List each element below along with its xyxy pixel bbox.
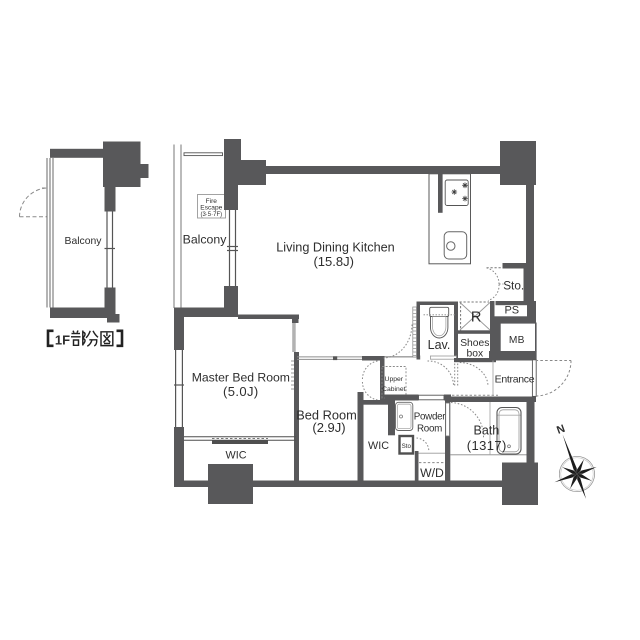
svg-text:1F: 1F (55, 333, 70, 348)
svg-text:W/D: W/D (420, 466, 444, 480)
svg-text:Cabinet: Cabinet (382, 386, 406, 393)
svg-text:PS: PS (504, 305, 519, 317)
svg-text:Sto.: Sto. (503, 279, 524, 293)
svg-text:Balcony: Balcony (65, 236, 103, 247)
svg-text:Escape: Escape (200, 205, 222, 212)
svg-text:Upper: Upper (385, 376, 404, 383)
svg-text:Shoes: Shoes (460, 338, 489, 349)
svg-text:(2.9J): (2.9J) (312, 420, 345, 435)
svg-text:Master Bed Room: Master Bed Room (192, 371, 290, 385)
svg-text:(15.8J): (15.8J) (313, 254, 353, 269)
svg-text:Bath: Bath (474, 424, 500, 438)
svg-text:(3·5·7F): (3·5·7F) (200, 212, 222, 218)
svg-text:WIC: WIC (368, 440, 389, 452)
svg-text:WIC: WIC (226, 450, 247, 462)
svg-text:box: box (466, 349, 483, 360)
svg-text:Entrance: Entrance (495, 373, 535, 385)
svg-text:Balcony: Balcony (183, 233, 228, 247)
svg-text:(5.0J): (5.0J) (223, 384, 259, 399)
svg-text:Sto: Sto (402, 443, 412, 450)
svg-text:MB: MB (509, 335, 525, 346)
svg-text:(1317): (1317) (467, 438, 507, 453)
svg-text:Lav.: Lav. (428, 338, 451, 352)
svg-text:Room: Room (417, 423, 442, 434)
svg-text:R: R (471, 310, 482, 326)
svg-text:Living Dining Kitchen: Living Dining Kitchen (276, 240, 395, 254)
svg-text:Powder: Powder (414, 412, 446, 423)
